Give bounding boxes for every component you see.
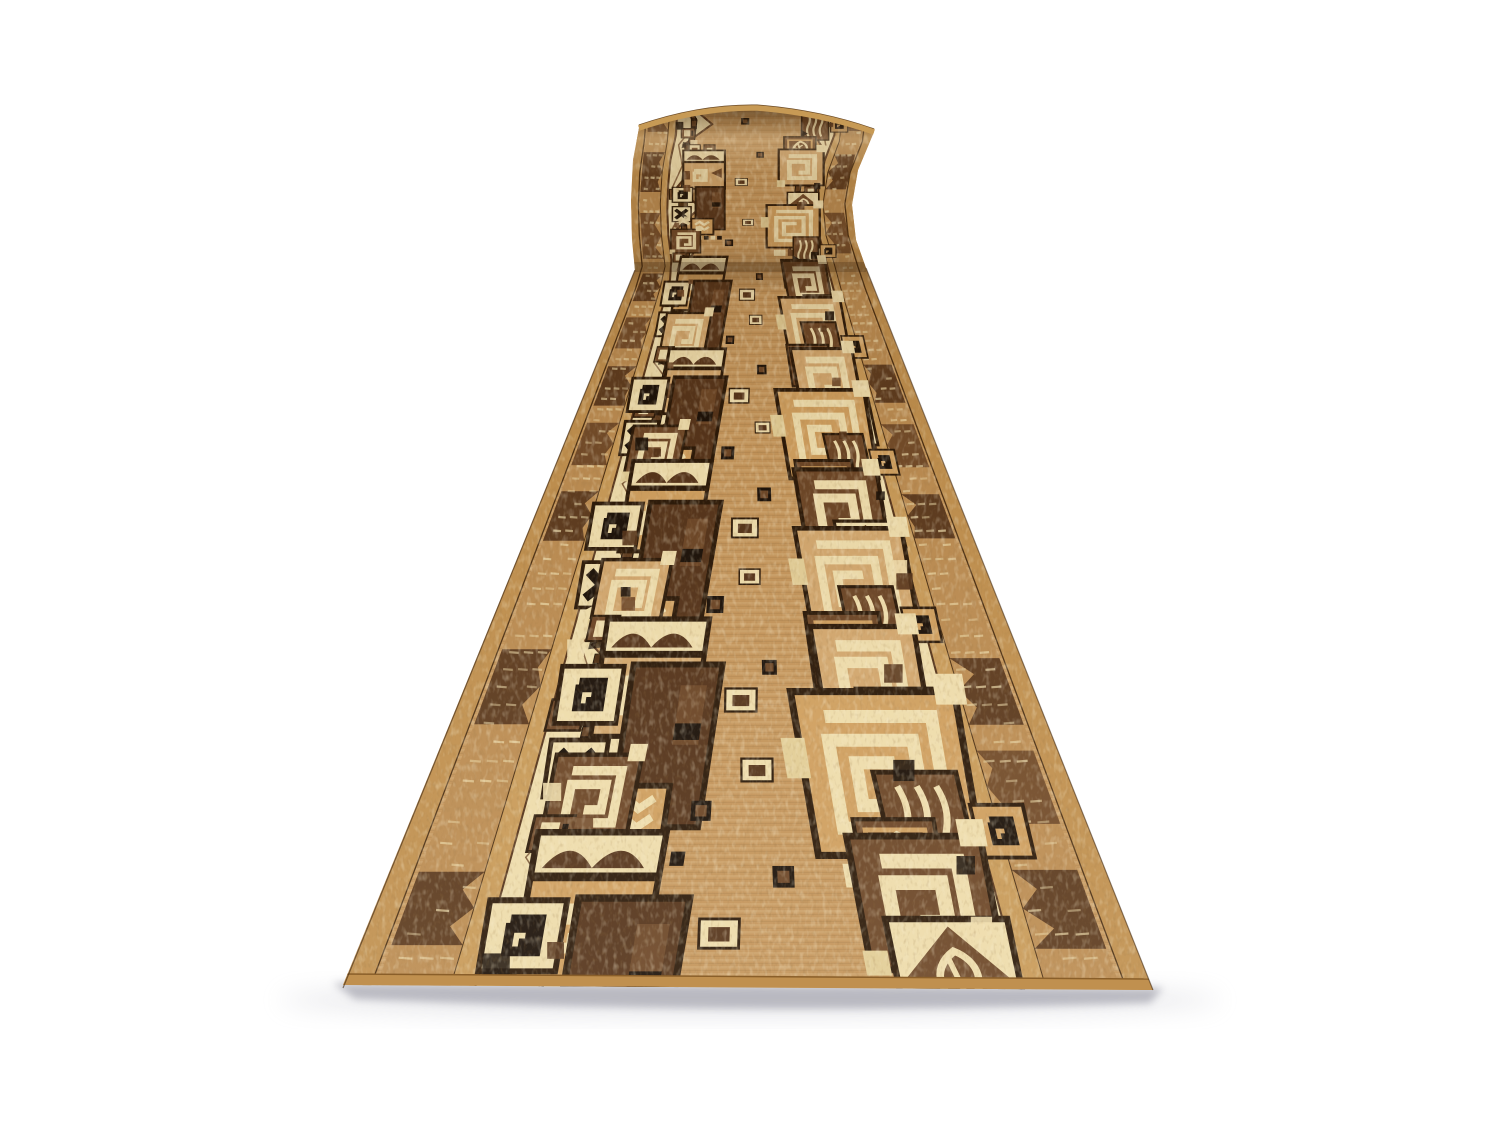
runner-rug-photo: [0, 0, 1500, 1125]
photo-canvas: [0, 0, 1500, 1125]
runner-rug-image: [0, 0, 1500, 1125]
